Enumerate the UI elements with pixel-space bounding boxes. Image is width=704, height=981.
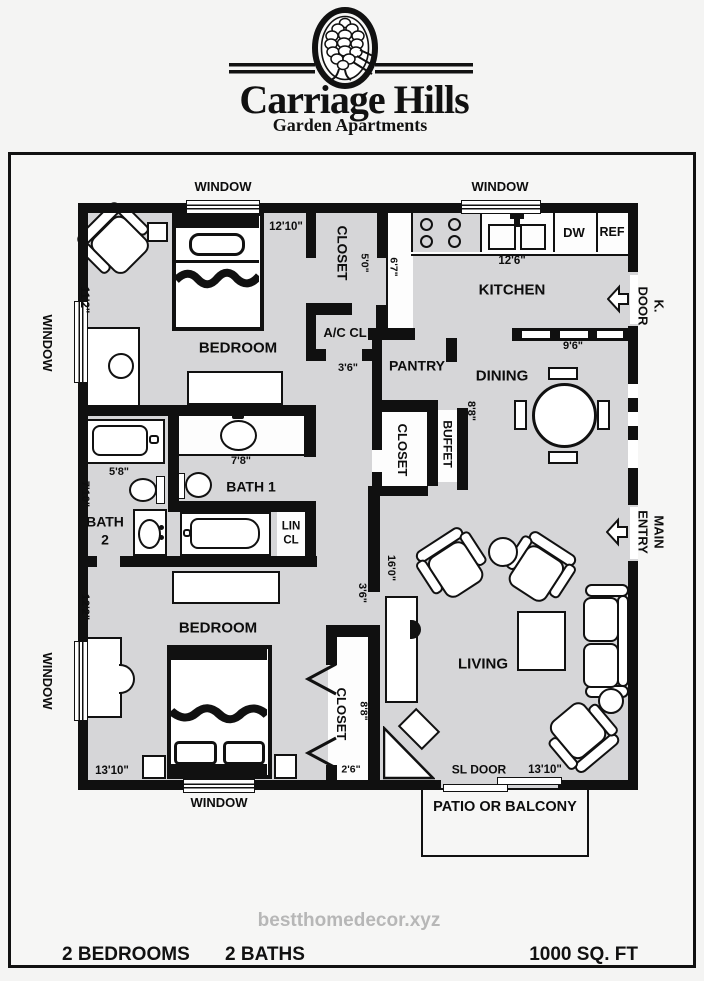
pantry-label: PANTRY — [389, 357, 445, 375]
dim-ac-width: 3'6" — [338, 362, 358, 376]
bedroom1-label: BEDROOM — [199, 340, 277, 359]
wall-bottom-1 — [78, 780, 185, 790]
wall-hall-corner — [304, 405, 316, 457]
dim-bedroom2-width: 13'10" — [95, 764, 129, 778]
wall-bottom-2 — [253, 780, 441, 790]
wall-bath1-tub-top — [168, 501, 316, 512]
nightstand-bedroom2-right — [274, 754, 297, 779]
bed-blanket-wave — [176, 266, 259, 292]
sofa — [583, 584, 631, 698]
burner-4 — [448, 235, 461, 248]
bath2-label: BATH 2 — [86, 514, 124, 549]
dim-living-width: 13'10" — [528, 763, 562, 777]
bed-blanket-wave — [171, 701, 267, 727]
wall-bed1-right-top — [306, 212, 316, 258]
bed-headboard — [176, 216, 259, 228]
counter-divider-1 — [480, 212, 482, 252]
patio-label: PATIO OR BALCONY — [433, 798, 577, 816]
sink-basin-bath1 — [220, 420, 257, 451]
sink-faucet — [159, 525, 164, 530]
wall-living-left-top — [368, 486, 380, 592]
dresser-bedroom1 — [187, 371, 283, 405]
rail-dash-3 — [597, 331, 623, 338]
wall-ac-stub-left — [306, 349, 326, 361]
coffee-table — [517, 611, 566, 671]
wall-closet-top-right — [377, 212, 386, 258]
rail-dash-2 — [560, 331, 588, 338]
window-label-left-upper: WINDOW — [39, 314, 55, 371]
kitchen-label: KITCHEN — [479, 282, 546, 301]
burner-1 — [420, 218, 433, 231]
entertainment-center — [385, 596, 418, 703]
dishwasher-label: DW — [563, 225, 585, 241]
dim-living-depth: 16'0" — [383, 555, 397, 581]
window-label-bottom: WINDOW — [190, 795, 247, 811]
bed-headboard — [171, 764, 267, 775]
window-bottom — [183, 779, 255, 793]
buffet-label: BUFFET — [440, 420, 455, 467]
dim-bedroom1-depth: 11'2" — [77, 287, 91, 314]
tub-basin — [92, 425, 148, 456]
dim-dining-depth: 8'8" — [463, 401, 477, 421]
wall-right-3 — [628, 398, 638, 412]
wall-dining-stub — [446, 338, 457, 362]
wall-bed1-bottom — [87, 405, 312, 416]
bath1-label: BATH 1 — [226, 478, 276, 496]
wall-top-2 — [258, 203, 463, 213]
sliding-door-panel-1 — [443, 784, 508, 792]
wall-kitchen-pantry — [368, 328, 415, 340]
bed-bedroom2 — [167, 645, 272, 779]
sliding-door-panel-2 — [497, 777, 562, 785]
wall-bottom-3 — [558, 780, 638, 790]
dining-chair-top — [548, 367, 578, 380]
bathtub-bath2 — [85, 419, 165, 464]
wall-closetmid-divider — [427, 410, 438, 486]
window-label-top-left: WINDOW — [194, 179, 251, 195]
refrigerator-label: REF — [600, 225, 625, 241]
toilet-bowl-bath2 — [129, 478, 157, 502]
k-door-arrow-icon — [607, 282, 629, 316]
window-top-left — [186, 200, 260, 214]
burner-3 — [420, 235, 433, 248]
bed-bedroom1 — [172, 212, 264, 331]
dim-closet2-depth: 8'8" — [356, 701, 369, 720]
wall-right-4 — [628, 426, 638, 440]
wall-bath-divider — [168, 416, 179, 508]
dim-kitchen-counter: 6'7" — [386, 257, 399, 276]
ac-closet-label: A/C CL — [323, 325, 366, 341]
bed-pillow-left — [174, 741, 217, 765]
wall-right-6 — [628, 561, 638, 790]
sofa-cushion-2 — [583, 643, 619, 688]
wall-top-3 — [539, 203, 638, 213]
main-entry-label: MAIN ENTRY — [634, 505, 667, 559]
sl-door-label: SL DOOR — [452, 763, 506, 778]
counter-divider-2 — [553, 212, 555, 252]
bed-sheet-line — [176, 260, 259, 263]
side-table-round-top — [488, 537, 518, 567]
bedroom2-label: BEDROOM — [179, 620, 257, 639]
bed-footboard — [171, 649, 267, 660]
closet-mid-label: CLOSET — [394, 424, 410, 477]
tub-faucet — [183, 529, 191, 537]
desk-chair-bedroom1 — [108, 353, 134, 379]
right-wall-window-3 — [628, 440, 638, 468]
sink-basin — [138, 519, 161, 549]
sink-vanity-bath2 — [133, 509, 167, 556]
dim-kitchen-width: 12'6" — [498, 254, 525, 268]
watermark: bestthomedecor.xyz — [258, 910, 441, 932]
window-label-left-lower: WINDOW — [39, 652, 55, 709]
dim-bedroom2-depth: 12'2" — [77, 594, 91, 620]
sink-handle — [159, 535, 164, 540]
dining-chair-bottom — [548, 451, 578, 464]
logo-subtitle: Garden Apartments — [273, 115, 428, 136]
nightstand-bedroom2-left — [142, 755, 166, 779]
window-left-lower — [74, 641, 88, 721]
dim-bath2-depth: 7'10" — [77, 481, 91, 507]
closet-top-label: CLOSET — [333, 226, 350, 281]
sink-basin-right — [520, 224, 546, 250]
wall-bath-bottom — [120, 556, 317, 567]
wall-lin-right — [305, 511, 316, 558]
bed-pillow-right — [223, 741, 265, 765]
tub-basin — [190, 518, 260, 549]
dresser-bedroom2 — [172, 571, 280, 604]
rail-dash-1 — [522, 331, 550, 338]
wall-pantry-left — [372, 338, 382, 450]
kitchen-faucet-stem — [514, 219, 520, 227]
dining-chair-left — [514, 400, 527, 430]
dim-closet-top: 5'0" — [357, 253, 370, 272]
closet-bed2-label: CLOSET — [333, 688, 349, 741]
window-top-right — [461, 200, 541, 214]
wall-bath-bottom-stub — [87, 556, 97, 567]
counter-divider-3 — [596, 212, 598, 252]
bed-pillow — [189, 233, 245, 256]
floor-plan-page: Carriage Hills Garden Apartments — [0, 0, 704, 981]
footer-baths: 2 BATHS — [225, 944, 305, 966]
k-door-label: K. DOOR — [634, 279, 667, 333]
footer-bedrooms: 2 BEDROOMS — [62, 944, 190, 966]
wall-right-5 — [628, 468, 638, 505]
window-label-top-right: WINDOW — [471, 179, 528, 195]
dim-bath1-vanity: 7'8" — [231, 455, 251, 469]
dim-hall-width: 3'6" — [354, 583, 368, 603]
toilet-tank-bath2 — [156, 476, 165, 504]
wall-top-1 — [78, 203, 188, 213]
main-entry-arrow-icon — [606, 515, 628, 549]
dim-dining-width: 9'6" — [563, 340, 583, 354]
wall-left-3 — [78, 716, 88, 790]
sofa-cushion-1 — [583, 597, 619, 642]
right-wall-window-2 — [628, 412, 638, 426]
wall-right-1 — [628, 203, 638, 272]
living-label: LIVING — [458, 656, 508, 675]
tub-faucet — [149, 435, 159, 444]
dining-table — [532, 383, 597, 448]
wall-living-left-bottom — [368, 625, 380, 790]
dim-bath2-tub: 5'8" — [109, 466, 129, 480]
footer-area: 1000 SQ. FT — [529, 944, 638, 966]
toilet-bowl-bath1 — [185, 472, 212, 498]
right-wall-window-1 — [628, 384, 638, 398]
dim-bedroom1-width: 12'10" — [269, 220, 303, 234]
bathtub-bath1 — [180, 512, 271, 556]
burner-2 — [448, 218, 461, 231]
wall-buffet-top — [372, 400, 438, 412]
dining-label: DINING — [476, 368, 529, 387]
dining-chair-right — [597, 400, 610, 430]
sink-basin-left — [488, 224, 516, 250]
dim-closet2-width: 2'6" — [341, 763, 360, 776]
linen-closet-label: LIN CL — [282, 520, 301, 549]
